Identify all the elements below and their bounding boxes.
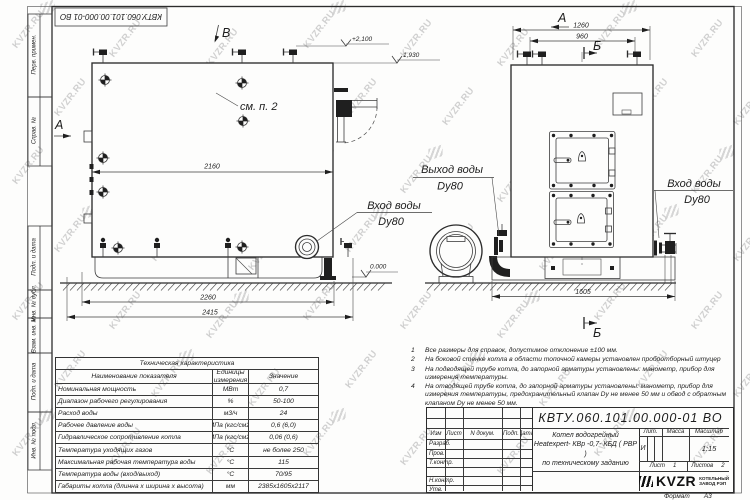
section-b-top: Б	[584, 39, 601, 59]
note-item: 2На боковой стенке котла в области топоч…	[411, 356, 737, 364]
dim-1260: 1260	[573, 23, 589, 30]
margin-label: Инв. № подл.	[31, 421, 38, 458]
outlet-elbow	[334, 88, 377, 143]
row-developer: Разраб.	[427, 439, 463, 449]
inlet-side-label: Вход воды Dy80	[317, 200, 432, 241]
view-a-right: А	[551, 11, 569, 29]
dim-2415: 2415	[201, 310, 218, 317]
svg-text:0.000: 0.000	[370, 264, 387, 271]
svg-text:Вход воды: Вход воды	[367, 200, 420, 212]
sheet-label: Лист	[650, 463, 665, 469]
margin-label: Справ. №	[31, 116, 38, 144]
margin-label: Подп. и дата	[32, 362, 38, 400]
margin-label: Перв. примен.	[32, 35, 38, 75]
front-skid	[492, 257, 675, 280]
product-name: Котел водогрейный Heatexpert- КВр -0,7- …	[532, 428, 639, 471]
table-row-value: 50-100	[248, 395, 318, 407]
dim-2415-group: 2415	[67, 258, 353, 321]
note-text: На отводящей трубе котла, до запорной ар…	[425, 383, 737, 408]
sheets-cell: Листов2	[687, 461, 729, 471]
row-ncontrol: Н.контр.	[427, 476, 463, 485]
titleblock-doc-number: КВТУ.060.101.00.000-01 ВО	[532, 408, 729, 428]
table-row-name: Диапазон рабочего регулирования	[56, 395, 212, 407]
elevation-zero: 0.000	[352, 264, 398, 278]
table-row-value: 70/95	[248, 468, 318, 480]
scale-value: 1:15	[689, 436, 729, 461]
blower-fan	[430, 225, 482, 283]
section-b-bottom: Б	[584, 317, 601, 340]
note-number: 1	[411, 347, 420, 355]
svg-text:Б: Б	[593, 39, 601, 53]
table-row-name: Температура воды (вход/выход)	[56, 468, 212, 480]
inlet-front-label: Вход воды Dy80	[654, 178, 733, 238]
elevation-1930: 1,930	[333, 52, 440, 63]
margin-label: Взам. инв. №	[31, 315, 38, 353]
top-stamp: КВТУ.060.101.00.000-01 ВО	[55, 8, 167, 26]
svg-text:см. п. 2: см. п. 2	[240, 101, 277, 113]
small-valve-icon	[341, 238, 352, 257]
tech-table-title: Техническая характеристика	[56, 358, 318, 369]
table-row-unit: МВт	[212, 383, 248, 395]
table-row-value: 0,7	[248, 383, 318, 395]
lit-label: Лит.	[639, 428, 662, 436]
table-row-unit: °С	[212, 456, 248, 468]
svg-text:+2,100: +2,100	[352, 36, 372, 43]
product-name-line3: по техническому заданию	[532, 459, 639, 468]
dim-2260-group: 2260	[82, 272, 334, 306]
mass-label: Масса	[662, 428, 689, 436]
sheets-value: 2	[721, 463, 724, 469]
svg-text:Dy80: Dy80	[684, 194, 711, 206]
table-row-value: 24	[248, 407, 318, 419]
safety-valve-icon	[284, 49, 298, 64]
safety-valve-icon	[94, 49, 108, 64]
table-row-value: 0,06 (0,6)	[248, 431, 318, 443]
table-row-name: Максимальная рабочая температура воды	[56, 456, 212, 468]
dim-2160: 2160	[203, 164, 220, 171]
dim-960: 960	[576, 34, 588, 41]
sheet-value: 1	[673, 463, 676, 469]
dim-2260: 2260	[199, 295, 216, 302]
table-row-value: не более 250	[248, 443, 318, 455]
note-item: 1Все размеры для справок, допустимое отк…	[411, 347, 737, 355]
svg-text:А: А	[54, 118, 63, 132]
col-header-value: Значение	[248, 369, 318, 383]
svg-text:Вход воды: Вход воды	[667, 178, 720, 190]
table-row-name: Температура уходящих газов	[56, 443, 212, 455]
svg-text:Dy80: Dy80	[437, 181, 464, 193]
safety-valve-icon	[518, 51, 532, 66]
note-number: 2	[411, 356, 420, 364]
note-number: 3	[411, 366, 420, 383]
sheets-label: Листов	[691, 463, 713, 469]
note-number: 4	[411, 383, 420, 408]
table-row-name: Рабочее давление воды	[56, 419, 212, 431]
product-name-line2: Heatexpert- КВр -0,7- КБД ( РВР )	[532, 440, 639, 459]
product-name-line1: Котел водогрейный	[532, 431, 639, 440]
svg-text:1,930: 1,930	[403, 52, 420, 59]
format-value: А3	[704, 493, 712, 500]
table-row-unit: °С	[212, 443, 248, 455]
side-skid	[95, 257, 336, 280]
sheet-cell: Лист1	[639, 461, 687, 471]
kvzr-logo-text: KVZR	[656, 473, 696, 489]
ground-hatch-left	[60, 283, 392, 291]
table-row-unit: %	[212, 395, 248, 407]
table-row-value: 2385х1605х2117	[248, 480, 318, 492]
margin-boxes: Перв. примен. Справ. № Подп. и дата Инв.…	[28, 14, 52, 470]
table-row-unit: МПа (кгс/см2)	[212, 431, 248, 443]
col-header-unit: Единицы измерения	[212, 369, 248, 383]
notes-list: 1Все размеры для справок, допустимое отк…	[411, 347, 737, 409]
svg-text:Б: Б	[593, 326, 601, 340]
table-row-name: Расход воды	[56, 407, 212, 419]
safety-valve-icon	[533, 51, 547, 66]
col-date: Дата	[520, 428, 532, 439]
svg-text:Dy80: Dy80	[378, 216, 405, 228]
col-izm: Изм	[427, 428, 445, 439]
note-item: 3На подводящей трубе котла, до запорной …	[411, 366, 737, 383]
format-note: Формат А3	[664, 493, 712, 500]
svg-text:В: В	[222, 26, 230, 40]
title-block: Изм Лист N докум. Подп. Дата Разраб. Про…	[426, 407, 734, 493]
table-row-unit: МПа (кгс/см2)	[212, 419, 248, 431]
table-row-name: Гидравлическое сопротивление котла	[56, 431, 212, 443]
safety-valve-icon	[628, 51, 642, 66]
note-text: На подводящей трубе котла, до запорной а…	[425, 366, 737, 383]
svg-text:Выход воды: Выход воды	[421, 164, 483, 176]
view-b-label: В	[215, 25, 231, 43]
col-header-name: Наименование показателя	[56, 369, 212, 383]
format-label: Формат	[664, 493, 690, 500]
col-list: Лист	[445, 428, 463, 439]
drawing-sheet: KVZR.RUKVZR.RUKVZR.RUKVZR.RUKVZR.RUKVZR.…	[0, 0, 750, 500]
lit-value: И	[639, 436, 647, 461]
row-tcontrol: Т.контр.	[427, 458, 463, 467]
table-row-unit: м3/ч	[212, 407, 248, 419]
dim-1605: 1605	[575, 289, 591, 296]
ground-hatch-right	[425, 283, 676, 291]
stamp-doc-number: КВТУ.060.101.00.000-01 ВО	[60, 12, 162, 21]
inlet-flange	[296, 236, 319, 259]
row-checker: Пров.	[427, 449, 463, 458]
margin-label: Инв. № дубл.	[31, 285, 38, 322]
boiler-front-view: 1260 960 А Б	[413, 11, 733, 340]
note-text: Все размеры для справок, допустимое откл…	[425, 347, 618, 355]
safety-valve-icon	[233, 49, 247, 64]
margin-label: Подп. и дата	[32, 238, 38, 276]
kvzr-logo-subtitle: КОТЕЛЬНЫЙ ЗАВОД РЭП	[699, 476, 729, 487]
note-text: На боковой стенке котла в области топочн…	[425, 356, 721, 364]
inlet-valve-front	[654, 234, 676, 284]
section-a-left: А	[54, 118, 71, 138]
table-row-unit: мм	[212, 480, 248, 492]
table-row-name: Номинальная мощность	[56, 383, 212, 395]
col-ndoc: N докум.	[463, 428, 502, 439]
note-item: 4На отводящей трубе котла, до запорной а…	[411, 383, 737, 408]
svg-text:А: А	[557, 11, 566, 25]
kvzr-logo-icon	[639, 476, 653, 487]
elevation-plus2100: +2,100	[296, 36, 389, 46]
table-row-value: 0,6 (6,0)	[248, 419, 318, 431]
row-approver: Утв.	[427, 485, 463, 494]
company-logo: KVZR КОТЕЛЬНЫЙ ЗАВОД РЭП	[639, 471, 729, 491]
table-row-unit: °С	[212, 468, 248, 480]
boiler-side-view: 2160	[54, 25, 440, 321]
table-row-name: Габариты котла (длинна х ширина х высота…	[56, 480, 212, 492]
dim-1605-group: 1605	[492, 281, 675, 301]
scale-label: Масштаб	[689, 428, 729, 436]
table-row-value: 115	[248, 456, 318, 468]
tech-table: Техническая характеристика Наименование …	[55, 357, 319, 493]
col-sign: Подп.	[502, 428, 520, 439]
